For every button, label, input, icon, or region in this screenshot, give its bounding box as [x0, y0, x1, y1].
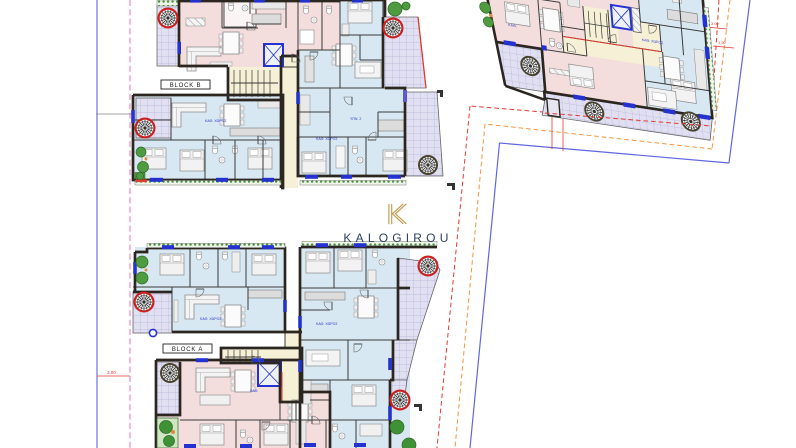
svg-text:KAΘ.: KAΘ.	[250, 389, 258, 393]
svg-text:BLOCK A: BLOCK A	[172, 347, 203, 353]
svg-text:3.00: 3.00	[711, 21, 720, 26]
svg-text:KAΘ. XΩPOΣ: KAΘ. XΩPOΣ	[316, 322, 338, 326]
svg-text:KAΘ. XΩPOΣ: KAΘ. XΩPOΣ	[316, 137, 338, 141]
svg-text:KAΘ. XΩPOΣ: KAΘ. XΩPOΣ	[205, 119, 227, 123]
svg-text:YΠN. 2: YΠN. 2	[350, 117, 361, 121]
svg-text:BLOCK B: BLOCK B	[170, 83, 202, 89]
svg-text:KAΘ. XΩPOΣ: KAΘ. XΩPOΣ	[200, 317, 222, 321]
svg-text:1.50: 1.50	[718, 40, 727, 45]
svg-text:3.00: 3.00	[107, 370, 116, 375]
svg-text:KALOGIROU: KALOGIROU	[343, 231, 452, 245]
